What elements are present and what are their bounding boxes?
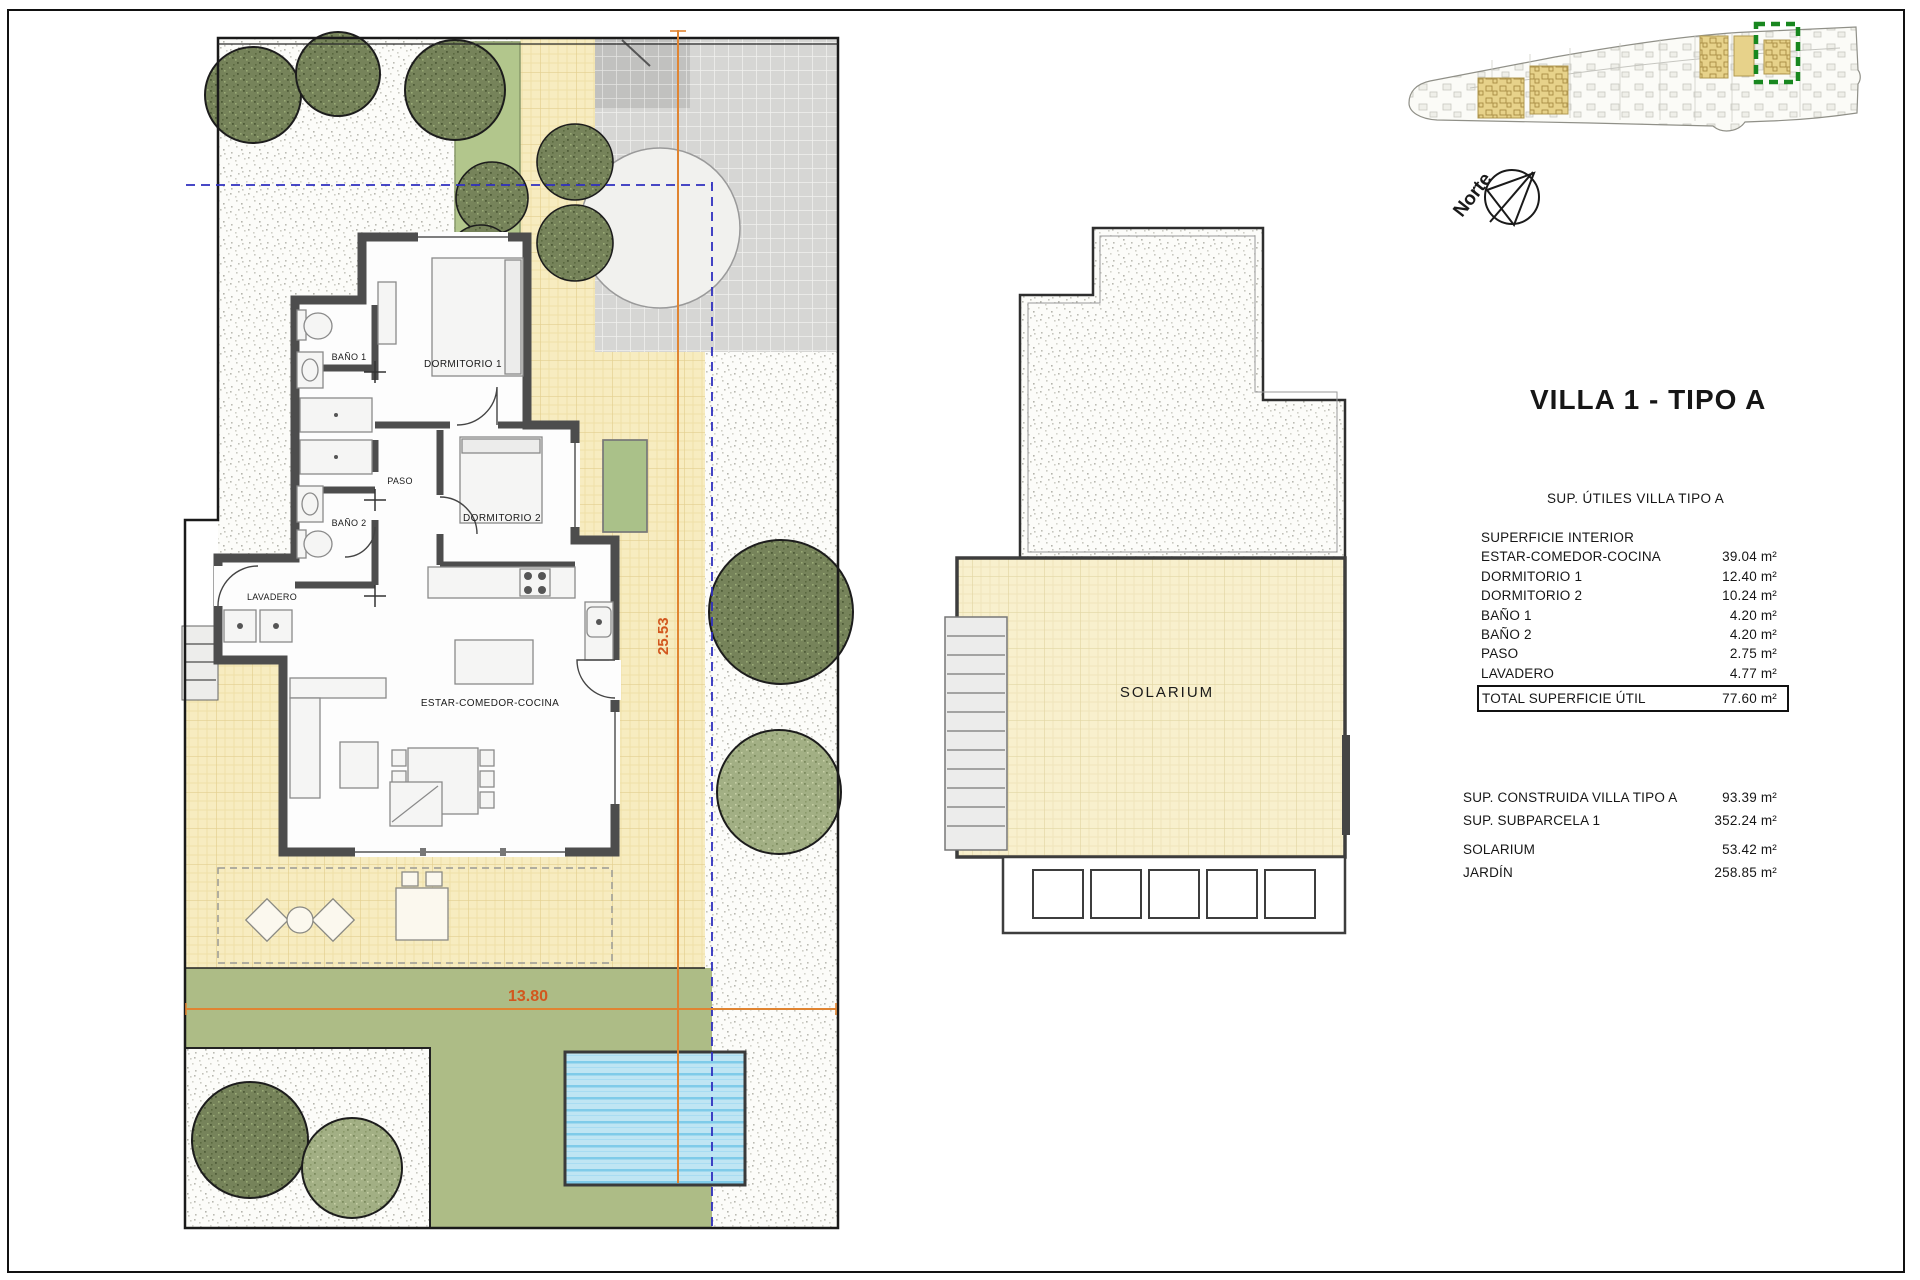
kitchen-counter [428, 567, 575, 598]
useful-areas-table: SUPERFICIE INTERIOR ESTAR-COMEDOR-COCINA… [1481, 528, 1777, 712]
urbanization-outline [1409, 27, 1860, 131]
bush-icon [537, 124, 613, 200]
dimension-width-label: 13.80 [508, 988, 548, 1005]
pergola-strip [1003, 857, 1345, 933]
table-row: DORMITORIO 112.40 m² [1481, 567, 1777, 586]
page-title: VILLA 1 - TIPO A [1530, 384, 1766, 416]
tree-icon [405, 40, 505, 140]
room-label-bano1: BAÑO 1 [332, 352, 367, 362]
room-label-paso: PASO [387, 476, 413, 486]
built-areas-table: SUP. CONSTRUIDA VILLA TIPO A93.39 m² SUP… [1463, 786, 1777, 884]
table-row: SOLARIUM53.42 m² [1463, 838, 1777, 861]
room-label-dormitorio1: DORMITORIO 1 [424, 359, 502, 370]
roof-gravel [1020, 228, 1345, 560]
table-row: PASO2.75 m² [1481, 644, 1777, 663]
tree-icon [709, 540, 853, 684]
room-label-dormitorio2: DORMITORIO 2 [463, 513, 541, 524]
room-label-estar: ESTAR-COMEDOR-COCINA [421, 698, 559, 709]
table-row: BAÑO 14.20 m² [1481, 606, 1777, 625]
table-row: SUP. SUBPARCELA 1352.24 m² [1463, 809, 1777, 832]
table-total-row: TOTAL SUPERFICIE ÚTIL77.60 m² [1477, 685, 1789, 712]
table-row: ESTAR-COMEDOR-COCINA39.04 m² [1481, 547, 1777, 566]
solarium-roof-plan: SOLARIUM [945, 228, 1350, 933]
sofa [290, 678, 386, 698]
room-label-bano2: BAÑO 2 [332, 518, 367, 528]
kitchen-island [455, 640, 533, 684]
north-compass: Norte [1449, 169, 1539, 225]
swimming-pool [565, 1052, 745, 1185]
tree-icon [192, 1082, 308, 1198]
table-row: BAÑO 24.20 m² [1481, 625, 1777, 644]
tree-icon [717, 730, 841, 854]
villa-ground-plan: BAÑO 1 DORMITORIO 1 PASO BAÑO 2 DORMITOR… [182, 30, 853, 1228]
exterior-steps [182, 626, 218, 700]
solarium-deck [957, 558, 1345, 857]
tree-icon [302, 1118, 402, 1218]
roof-stairs [945, 617, 1007, 850]
table-row: SUP. CONSTRUIDA VILLA TIPO A93.39 m² [1463, 786, 1777, 809]
dimension-height-label: 25.53 [655, 617, 672, 655]
bush-icon [537, 205, 613, 281]
location-map [1409, 24, 1860, 131]
table-row: DORMITORIO 210.24 m² [1481, 586, 1777, 605]
bush-icon [456, 162, 528, 234]
stove-icon [520, 569, 550, 596]
tree-icon [205, 47, 301, 143]
table-section-header: SUPERFICIE INTERIOR [1481, 528, 1777, 547]
table-row: JARDÍN258.85 m² [1463, 861, 1777, 884]
areas-table-title: SUP. ÚTILES VILLA TIPO A [1547, 491, 1724, 506]
room-label-lavadero: LAVADERO [247, 592, 297, 602]
solarium-label: SOLARIUM [1120, 684, 1214, 701]
table-row: LAVADERO4.77 m² [1481, 664, 1777, 683]
